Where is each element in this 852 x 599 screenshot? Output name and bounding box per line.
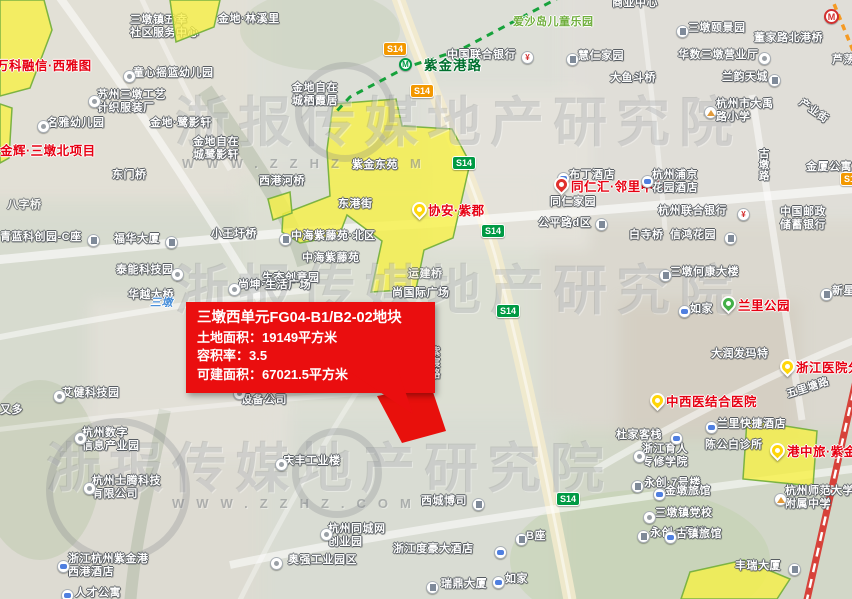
dot-icon[interactable] <box>123 70 136 83</box>
hotel-icon[interactable] <box>678 305 691 318</box>
map-label[interactable]: 大润发玛特 <box>711 348 769 361</box>
map-label[interactable]: 运建桥 <box>408 268 443 281</box>
map-label[interactable]: 兰里快捷酒店 <box>717 418 786 431</box>
map-label[interactable]: 浙江度豪大酒店 <box>393 543 474 556</box>
dot-icon[interactable] <box>74 432 87 445</box>
dot-icon[interactable] <box>83 482 96 495</box>
school-icon[interactable] <box>704 106 717 119</box>
road-badge-s14: S14 <box>481 224 505 238</box>
map-label[interactable]: 中海紫藤苑 <box>302 252 360 265</box>
map-label[interactable]: 名雅幼儿园 <box>47 117 105 130</box>
map-label[interactable]: 八字桥 <box>7 199 42 212</box>
dot-icon[interactable] <box>320 528 333 541</box>
map-label[interactable]: B座 <box>526 530 546 543</box>
map-label[interactable]: 尚坤·生活广场 <box>238 279 311 292</box>
dot-icon[interactable] <box>643 511 656 524</box>
road-badge-s14: S14 <box>383 42 407 56</box>
map-label[interactable]: 金地·林溪里 <box>218 13 280 26</box>
hotel-icon[interactable] <box>494 546 507 559</box>
map-label[interactable]: 陈公白诊所 <box>705 439 763 452</box>
map-label[interactable]: 慧仁家园 <box>578 50 624 63</box>
dot-icon[interactable] <box>228 283 241 296</box>
map-label[interactable]: 杭州联合银行 <box>658 205 727 218</box>
map-label[interactable]: 三墩镇党校 <box>655 507 713 520</box>
parcel-land-area: 土地面积：19149平方米 <box>197 329 424 348</box>
bld-icon[interactable] <box>637 530 650 543</box>
bank-icon[interactable]: ¥ <box>737 208 750 221</box>
map-label[interactable]: 杭州数字 信息产业园 <box>82 427 140 453</box>
bld-icon[interactable] <box>788 563 801 576</box>
dot-icon[interactable] <box>275 458 288 471</box>
map-label[interactable]: 中西医结合医院 <box>666 395 757 410</box>
map-label[interactable]: 杭州市大禹 路小学 <box>716 98 774 124</box>
map-label[interactable]: 小王圩桥 <box>211 228 257 241</box>
map-label[interactable]: 三墩 <box>150 297 173 310</box>
map-label[interactable]: 董家路北港桥 <box>754 32 823 45</box>
map-label[interactable]: 协安·紫郡 <box>428 204 485 219</box>
map-label[interactable]: 三墩何康大楼 <box>670 266 739 279</box>
hotel-icon[interactable] <box>705 421 718 434</box>
map-label[interactable]: 金辉·三墩北项目 <box>0 144 96 159</box>
bld-icon[interactable] <box>165 236 178 249</box>
map-label[interactable]: 杭州浦京 花园酒店 <box>652 169 698 195</box>
map-label[interactable]: 如家 <box>690 303 713 316</box>
map-label[interactable]: 杭州士腾科技 有限公司 <box>92 475 161 501</box>
bank-icon[interactable]: ¥ <box>521 51 534 64</box>
hotel-icon[interactable] <box>653 488 666 501</box>
hotel-icon[interactable] <box>492 576 505 589</box>
bld-icon[interactable] <box>724 232 737 245</box>
map-label[interactable]: 金墩旅馆 <box>665 485 711 498</box>
parcel-tooltip-title: 三墩西单元FG04-B1/B2-02地块 <box>197 309 424 329</box>
map-label[interactable]: 浙江医院分院 <box>796 361 852 376</box>
dot-icon[interactable] <box>88 95 101 108</box>
map-label[interactable]: 东门桥 <box>112 169 147 182</box>
map-label[interactable]: 西城博司 <box>421 495 467 508</box>
hotel-icon[interactable] <box>641 175 654 188</box>
map-label[interactable]: 中国邮政 储蓄银行 <box>780 206 826 232</box>
bld-icon[interactable] <box>768 74 781 87</box>
bld-icon[interactable] <box>659 269 672 282</box>
map-label[interactable]: 人才公寓 <box>75 587 121 599</box>
map-label[interactable]: 浙江杭州紫金港 西港酒店 <box>68 553 149 579</box>
road-badge-s14: S14 <box>556 492 580 506</box>
map-label[interactable]: 青蓝科创园-C座 <box>0 231 82 244</box>
bld-icon[interactable] <box>820 288 833 301</box>
map-label[interactable]: 古镇旅馆 <box>676 528 722 541</box>
hotel-icon[interactable] <box>670 432 683 445</box>
road-badge-s14: S14 <box>496 304 520 318</box>
map-label[interactable]: 东港街 <box>338 198 373 211</box>
map-label[interactable]: 浙江育人 专修学院 <box>642 443 688 469</box>
map-label[interactable]: 兰里公园 <box>738 299 790 314</box>
map-label[interactable]: 商业中心 <box>612 0 658 10</box>
road-badge-s14: S14 <box>840 172 852 186</box>
map-label[interactable]: 苏州三墩工艺 针织服装厂 <box>97 89 166 115</box>
bld-icon[interactable] <box>515 533 528 546</box>
map-label[interactable]: 信鸿花园 <box>670 229 716 242</box>
bld-icon[interactable] <box>472 498 485 511</box>
bld-icon[interactable] <box>631 480 644 493</box>
map-label[interactable]: 金地自在 城鹭影轩 <box>193 136 239 162</box>
dot-icon[interactable] <box>53 390 66 403</box>
dot-icon[interactable] <box>758 52 771 65</box>
dot-icon[interactable] <box>171 268 184 281</box>
map-label[interactable]: 如家 <box>505 573 528 586</box>
map-label[interactable]: 杭州同城网 创业园 <box>328 523 386 549</box>
map-label[interactable]: 爱沙岛儿童乐园 <box>513 16 594 29</box>
hotel-icon[interactable] <box>57 560 70 573</box>
map-label[interactable]: 瑞鼎大厦 <box>441 578 487 591</box>
map-label[interactable]: 大鱼斗桥 <box>610 72 656 85</box>
bld-icon[interactable] <box>279 233 292 246</box>
map-label[interactable]: 金地·鹭影轩 <box>150 117 212 130</box>
map-label[interactable]: 古墩路 <box>757 148 770 181</box>
map-label[interactable]: 福华大厦 <box>114 233 160 246</box>
map-label[interactable]: 兰韵天城 <box>722 71 768 84</box>
bld-icon[interactable] <box>426 581 439 594</box>
map-label[interactable]: 新星 <box>832 285 852 298</box>
map-label[interactable]: 泰能科技园 <box>116 264 174 277</box>
map-label[interactable]: 芦荡 <box>832 54 852 67</box>
road-badge-s14: S14 <box>452 156 476 170</box>
dot-icon[interactable] <box>270 557 283 570</box>
map-label[interactable]: 三墩镇五幸 社区服务中心 <box>130 14 199 40</box>
map-label[interactable]: 同仁家园 <box>550 196 596 209</box>
map-label[interactable]: 杭州师范大学 附属中学 <box>785 485 852 511</box>
hotel-icon[interactable] <box>61 589 74 599</box>
bld-icon[interactable] <box>87 234 100 247</box>
map-label[interactable]: 白寺桥 <box>629 229 664 242</box>
dot-icon[interactable] <box>633 450 646 463</box>
map-label[interactable]: 庆丰工业楼 <box>283 455 341 468</box>
school-icon[interactable] <box>774 493 787 506</box>
map-label[interactable]: 紫金港路 <box>424 58 482 74</box>
map-label[interactable]: 华数三墩营业厅 <box>678 49 759 62</box>
metroG-icon[interactable]: M <box>399 58 412 71</box>
map-label[interactable]: 紫金东苑 <box>352 159 398 172</box>
map-label[interactable]: 杜家客栈 <box>616 429 662 442</box>
map-label[interactable]: 金地自在 城栖霞居 <box>292 82 338 108</box>
map-label[interactable]: 港中旅·紫金 <box>787 445 852 460</box>
bld-icon[interactable] <box>566 53 579 66</box>
map-label[interactable]: 三墩颐景园 <box>688 22 746 35</box>
parcel-plot-ratio: 容积率：3.5 <box>197 347 424 366</box>
hotel-icon[interactable] <box>664 531 677 544</box>
map-label[interactable]: 万科融信·西雅图 <box>0 59 92 74</box>
metroR-icon[interactable]: M <box>824 9 839 24</box>
map-label[interactable]: 中海紫藤苑·北区 <box>291 230 376 243</box>
bld-icon[interactable] <box>676 25 689 38</box>
map-canvas[interactable]: 浙报传媒地产研究院浙报传媒地产研究院浙报传媒地产研究院WWW.ZZHZ.COMW… <box>0 0 852 599</box>
map-label[interactable]: 丰瑞大厦 <box>735 560 781 573</box>
map-label[interactable]: 童心摇篮幼儿园 <box>133 67 214 80</box>
map-label[interactable]: 艾健科技园 <box>62 387 120 400</box>
dot-icon[interactable] <box>37 120 50 133</box>
map-label[interactable]: 公平路d区 <box>538 217 591 230</box>
map-label[interactable]: 西港河桥 <box>259 175 305 188</box>
bld-icon[interactable] <box>595 218 608 231</box>
road-badge-s14: S14 <box>410 84 434 98</box>
map-label[interactable]: 又多 <box>0 404 23 417</box>
map-label[interactable]: 尚国际广场 <box>392 287 450 300</box>
map-label[interactable]: 奥强工业园区 <box>288 554 357 567</box>
